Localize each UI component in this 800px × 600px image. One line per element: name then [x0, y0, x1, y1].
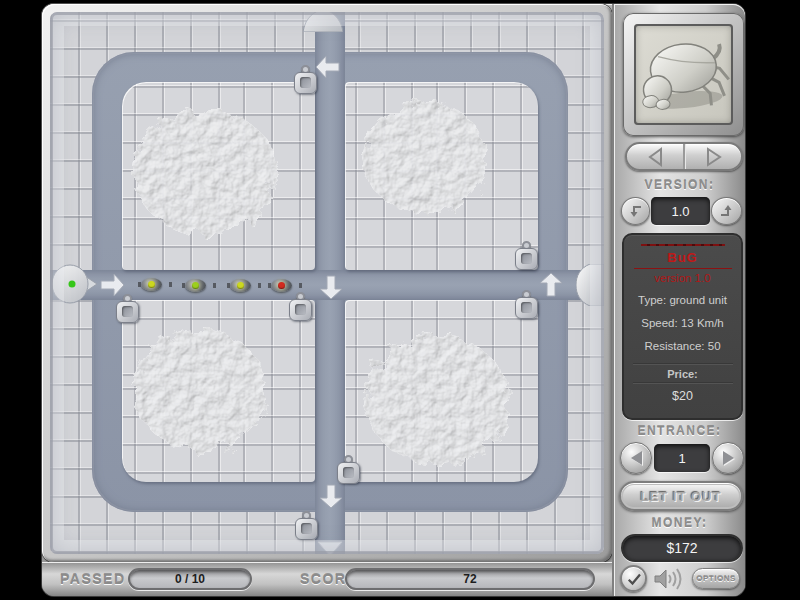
bug-sprite[interactable]: [140, 276, 164, 292]
game-chrome: PASSED 0 / 10 SCORE 72: [42, 4, 745, 596]
version-up-button[interactable]: [711, 197, 742, 225]
version-label: VERSION:: [614, 178, 745, 192]
entrance-stepper: 1: [620, 442, 744, 474]
control-panel: VERSION: 1.0: [612, 4, 745, 596]
version-up-icon: [717, 203, 735, 219]
passed-value: 0 / 10: [175, 572, 205, 586]
price-label: Price:: [624, 368, 741, 380]
info-divider: [633, 363, 733, 364]
passed-label: PASSED: [60, 571, 126, 587]
entrance-value: 1: [654, 444, 710, 472]
tower-sprite[interactable]: [289, 292, 313, 322]
entrance-next-button[interactable]: [712, 442, 744, 474]
tower-sprite[interactable]: [337, 455, 361, 485]
tower-sprite[interactable]: [116, 294, 140, 324]
prev-arrow-icon: [643, 145, 667, 169]
let-it-out-label: LET IT OUT: [641, 489, 722, 504]
game-screen: PASSED 0 / 10 SCORE 72: [0, 0, 800, 600]
unit-type: Type: ground unit: [624, 294, 741, 306]
version-value: 1.0: [651, 197, 709, 225]
unit-selector: [625, 142, 743, 171]
score-value: 72: [463, 572, 476, 586]
info-divider-red: [634, 268, 732, 269]
tower-sprite[interactable]: [515, 290, 539, 320]
unit-name: BuG: [624, 250, 741, 265]
money-value-text: $172: [666, 540, 697, 556]
options-button[interactable]: OPTIONS: [692, 568, 740, 589]
unit-resistance: Resistance: 50: [624, 340, 741, 352]
beetle-image: [634, 24, 733, 125]
bug-sprite[interactable]: [184, 277, 208, 293]
tower-sprite[interactable]: [515, 241, 539, 271]
unit-portrait-frame: [623, 13, 744, 136]
prev-unit-button[interactable]: [627, 144, 685, 169]
tower-sprite[interactable]: [295, 511, 319, 541]
path-arrow-up: [537, 271, 565, 299]
entrance-prev-button[interactable]: [620, 442, 652, 474]
board-frame: [42, 4, 612, 562]
status-bar: PASSED 0 / 10 SCORE 72: [42, 562, 612, 596]
let-it-out-button[interactable]: LET IT OUT: [619, 481, 743, 511]
next-arrow-icon: [701, 145, 725, 169]
game-board[interactable]: [50, 12, 604, 554]
entrance-label: ENTRANCE:: [614, 424, 745, 438]
unit-portrait: [634, 24, 733, 125]
path-arrow-left: [314, 53, 342, 81]
right-triangle-icon: [723, 451, 734, 465]
tower-sprite[interactable]: [294, 65, 318, 95]
unit-speed: Speed: 13 Km/h: [624, 317, 741, 329]
version-down-button[interactable]: [621, 197, 650, 225]
entrance-value-text: 1: [678, 451, 685, 466]
version-value-text: 1.0: [671, 204, 689, 219]
volume-icon[interactable]: [652, 567, 682, 591]
unit-info-panel: BuG version 1.0 Type: ground unit Speed:…: [622, 233, 743, 420]
version-stepper: 1.0: [621, 196, 742, 226]
left-triangle-icon: [631, 451, 642, 465]
path-arrow-down: [317, 482, 345, 510]
bug-sprite[interactable]: [229, 277, 253, 293]
unit-version: version 1.0: [624, 272, 741, 284]
info-divider2: [633, 382, 733, 383]
score-counter: 72: [345, 568, 595, 590]
money-label: MONEY:: [614, 516, 745, 530]
exit-marker: [317, 541, 343, 554]
info-decorative-line: [641, 244, 725, 246]
options-label: OPTIONS: [696, 574, 736, 583]
path-arrow-down: [317, 273, 345, 301]
passed-counter: 0 / 10: [128, 568, 252, 590]
version-down-icon: [627, 203, 645, 219]
next-unit-button[interactable]: [685, 144, 741, 169]
bug-sprite[interactable]: [270, 277, 294, 293]
money-display: $172: [621, 534, 743, 562]
price-value: $20: [624, 389, 741, 403]
sprite-layer: [50, 12, 604, 554]
checkmark-icon: [625, 570, 643, 588]
confirm-toggle-button[interactable]: [620, 565, 647, 592]
panel-bottom-row: OPTIONS: [614, 561, 747, 596]
